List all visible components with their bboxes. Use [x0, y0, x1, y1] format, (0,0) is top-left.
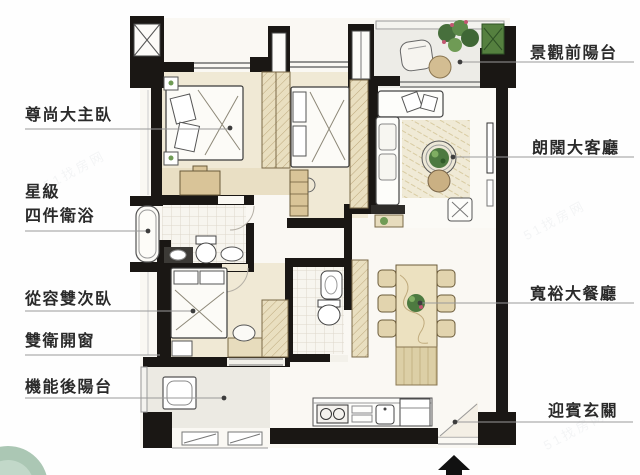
- floor-plan-page: 51找房网 51找房网 51找房网 51找房网 51找房网: [0, 0, 640, 475]
- label-star-bath-line2: 四件衛浴: [25, 205, 95, 228]
- label-rear-balcony: 機能後陽台: [25, 376, 113, 399]
- label-entrance-foyer: 迎賓玄關: [548, 400, 618, 423]
- label-dining-room: 寬裕大餐廳: [530, 283, 618, 306]
- label-secondary-bedroom: 從容雙次臥: [25, 288, 113, 311]
- label-star-bath-line1: 星級: [25, 181, 60, 204]
- rear-balcony: [163, 377, 196, 409]
- label-front-balcony: 景觀前陽台: [530, 42, 618, 65]
- kitchen: [313, 398, 432, 426]
- entrance-arrow: [438, 455, 470, 475]
- label-dual-bath-window: 雙衛開窗: [25, 330, 95, 353]
- label-living-room: 朗闊大客廳: [532, 137, 620, 160]
- floor-plan: [0, 0, 640, 475]
- label-master-bedroom: 尊尚大主臥: [25, 104, 113, 127]
